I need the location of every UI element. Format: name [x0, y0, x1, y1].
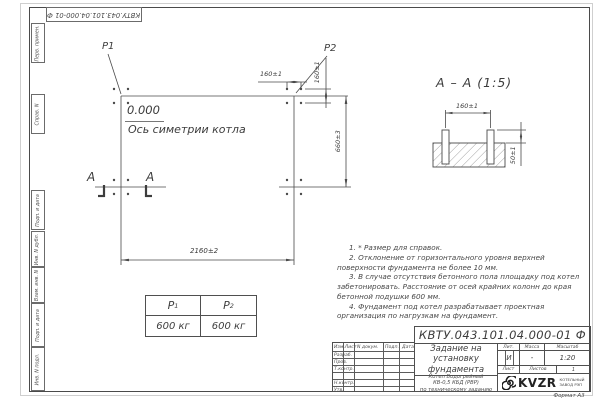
title-block-signature-grid: Изм.Лист N докум. Подп. Дата Разраб. Про… [332, 342, 415, 392]
section-dim-bolt-spacing: 160±1 [456, 103, 478, 110]
col-header-izm-list: Изм.Лист [334, 345, 356, 350]
row-utv: Утв. [334, 388, 344, 393]
margin-box-inv-podl: Инв. N подл. [31, 347, 45, 391]
margin-box-perv-primen: Перв. примен. [31, 23, 45, 63]
dim-foundation-width: 660±3 [335, 128, 342, 154]
top-doc-number: КВТУ.043.101.04.000-01 Ф [47, 11, 140, 19]
load-table-header-p1: P1 [146, 296, 201, 316]
dim-bolt-spacing-horizontal: 160±1 [260, 71, 282, 78]
format-label: Формат А3 [545, 393, 593, 399]
col-header-data: Дата [402, 345, 414, 350]
load-point-1-label: P1 [102, 42, 114, 52]
title-block-doc-number: КВТУ.043.101.04.000-01 Ф [414, 326, 591, 344]
load-table: P1 P2 600 кг 600 кг [145, 295, 257, 337]
top-doc-number-box: КВТУ.043.101.04.000-01 Ф [46, 7, 142, 22]
note-3: 3. В случае отсутствия бетонного пола пл… [337, 272, 588, 301]
section-view-title: А – А (1:5) [436, 77, 512, 90]
margin-box-inv-dubl: Инв. N дубл. [31, 231, 45, 267]
col-header-podp: Подп. [385, 345, 399, 350]
kvzr-logo-text: KVZR [518, 376, 557, 390]
mass-value: - [519, 350, 545, 366]
title-block-name: Задание на установку фундамента [414, 343, 498, 376]
section-dim-bolt-height: 50±1 [510, 142, 517, 168]
section-letter-a1: А [87, 171, 95, 183]
scale-value: 1:20 [544, 350, 591, 366]
note-4: 4. Фундамент под котел разрабатывает про… [337, 302, 588, 322]
title-block-subname: Котел Водогрейный КВ-0,5 КБД (РВР) по те… [414, 375, 498, 392]
manufacturer-logo-cell: KVZR КОТЕЛЬНЫЙ ЗАВОД РЭП [497, 373, 591, 392]
row-n-kontr: Н.контр. [334, 381, 355, 386]
kvzr-logo-subtext: КОТЕЛЬНЫЙ ЗАВОД РЭП [560, 378, 585, 387]
lit-cell: И [497, 350, 520, 366]
technical-notes: 1. * Размер для справок. 2. Отклонение о… [337, 243, 588, 321]
load-point-2-label: P2 [324, 44, 336, 54]
margin-box-podp-data-1: Подп. и дата [31, 190, 45, 230]
margin-box-podp-data-2: Подп. и дата [31, 303, 45, 347]
dim-bolt-spacing-vertical: 160±1 [314, 59, 321, 85]
col-header-n-dokum: N докум. [357, 345, 378, 350]
section-letter-a2: А [146, 171, 154, 183]
row-prov: Пров. [334, 360, 347, 365]
row-razrab: Разраб. [334, 353, 352, 358]
load-table-value-p2: 600 кг [201, 316, 256, 336]
kvzr-spiral-logo-icon [502, 376, 516, 390]
dim-foundation-length: 2160±2 [190, 248, 218, 255]
load-table-value-p1: 600 кг [146, 316, 201, 336]
load-table-header-p2: P2 [201, 296, 256, 316]
margin-box-sprav-n: Справ. N [31, 94, 45, 134]
note-1: 1. * Размер для справок. [337, 243, 588, 253]
boiler-symmetry-axis-label: Ось симетрии котла [128, 124, 246, 135]
lit-value: И [505, 351, 513, 365]
margin-box-vzam-inv: Взам. инв. N [31, 267, 45, 303]
elevation-mark: 0.000 [127, 105, 160, 117]
row-t-kontr: Т.контр. [334, 367, 354, 372]
note-2: 2. Отклонение от горизонтального уровня … [337, 253, 588, 273]
